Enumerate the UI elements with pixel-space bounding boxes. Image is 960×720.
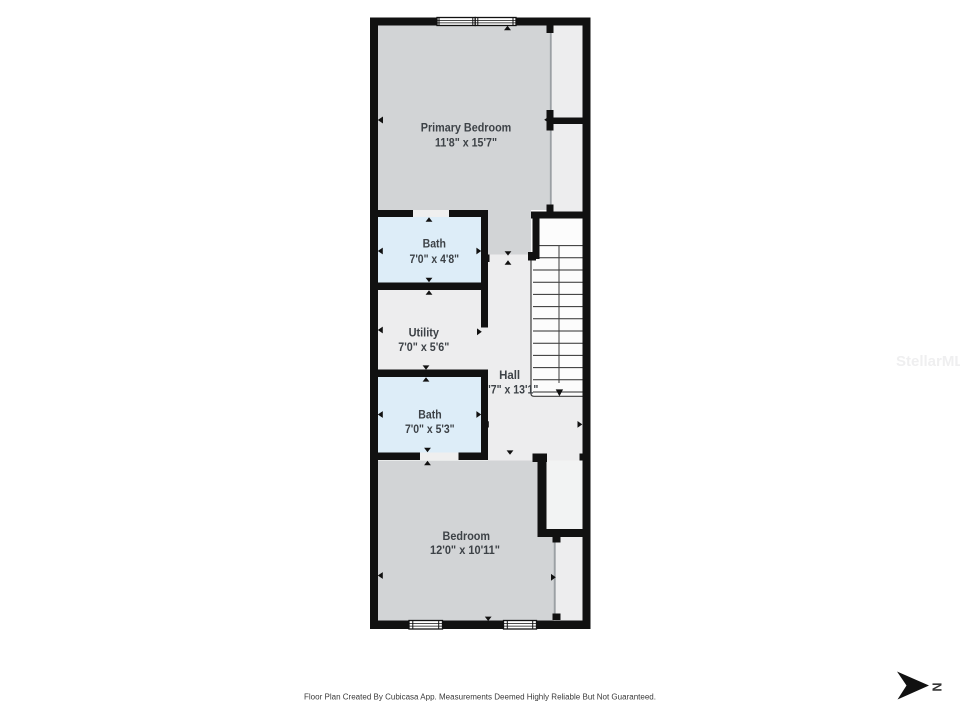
svg-text:Bedroom: Bedroom [443,530,491,543]
svg-text:7'0" x 5'6": 7'0" x 5'6" [398,341,449,354]
svg-text:StellarMLS: StellarMLS [896,353,960,370]
svg-text:Utility: Utility [409,327,440,340]
svg-text:11'8" x 15'7": 11'8" x 15'7" [435,137,497,150]
svg-text:N: N [930,682,944,691]
svg-text:Bath: Bath [418,409,441,422]
svg-text:Floor Plan Created By Cubicasa: Floor Plan Created By Cubicasa App. Meas… [304,693,656,702]
svg-text:7'0" x 5'3": 7'0" x 5'3" [405,423,455,436]
svg-text:7'0" x 4'8": 7'0" x 4'8" [410,253,460,266]
svg-text:Primary Bedroom: Primary Bedroom [421,121,512,134]
svg-text:'7" x 13'1": '7" x 13'1" [488,383,538,396]
svg-text:Bath: Bath [423,237,446,250]
svg-text:Hall: Hall [499,369,520,382]
svg-text:12'0" x 10'11": 12'0" x 10'11" [430,544,500,557]
